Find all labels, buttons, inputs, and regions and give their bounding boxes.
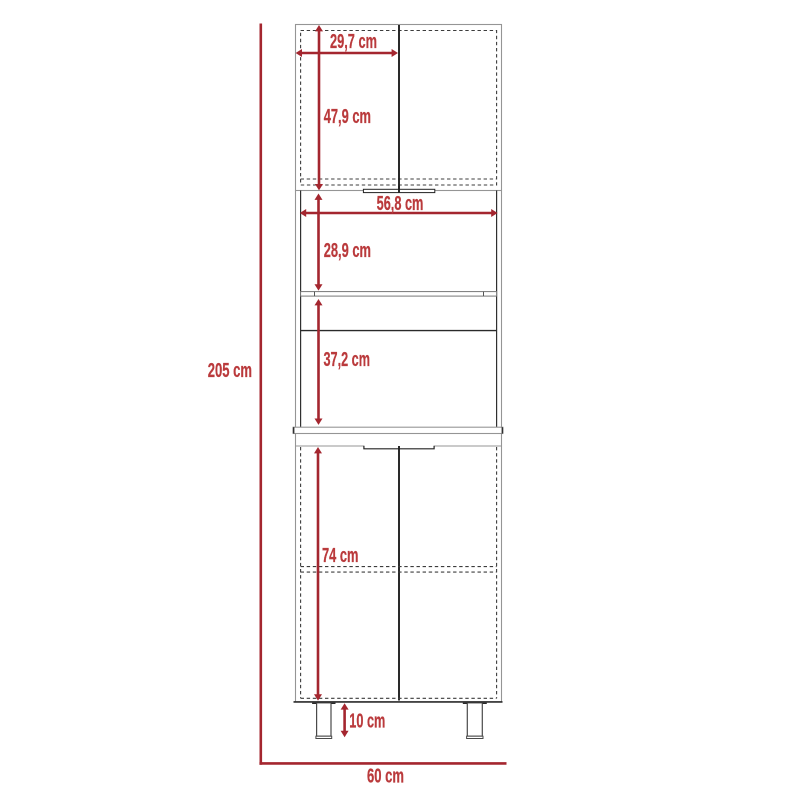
svg-text:28,9 cm: 28,9 cm [324,239,371,262]
svg-text:74 cm: 74 cm [322,544,358,567]
svg-text:205 cm: 205 cm [208,359,252,382]
svg-text:47,9 cm: 47,9 cm [324,105,371,128]
svg-text:56,8 cm: 56,8 cm [377,192,424,215]
svg-text:60 cm: 60 cm [367,765,404,788]
svg-text:10 cm: 10 cm [349,709,385,732]
svg-text:29,7 cm: 29,7 cm [330,30,377,53]
svg-text:37,2 cm: 37,2 cm [324,348,371,371]
